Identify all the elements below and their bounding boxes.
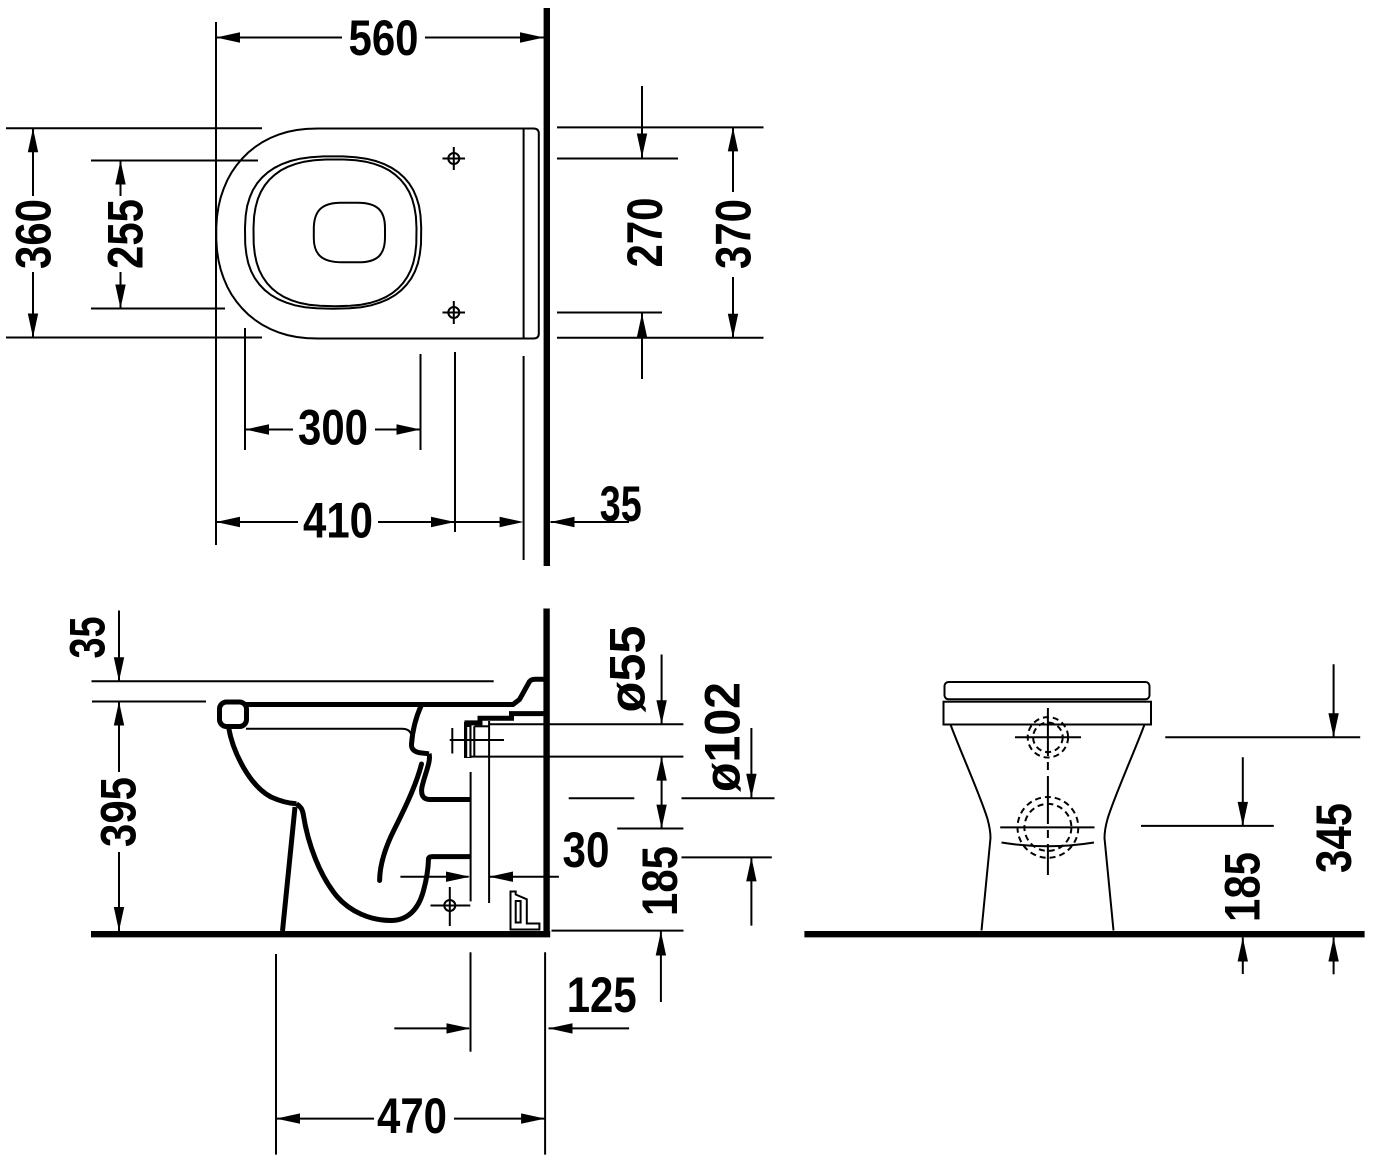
svg-text:370: 370 — [706, 199, 762, 269]
svg-text:ø102: ø102 — [695, 682, 751, 792]
svg-text:560: 560 — [349, 10, 419, 66]
svg-text:300: 300 — [298, 400, 368, 456]
svg-text:185: 185 — [1215, 852, 1271, 922]
svg-text:395: 395 — [91, 777, 147, 847]
svg-text:185: 185 — [632, 846, 688, 916]
svg-text:270: 270 — [617, 198, 673, 268]
svg-text:35: 35 — [59, 617, 115, 659]
svg-text:35: 35 — [600, 476, 642, 532]
svg-text:125: 125 — [567, 967, 637, 1023]
svg-text:410: 410 — [303, 493, 373, 549]
svg-text:470: 470 — [377, 1088, 447, 1144]
svg-text:ø55: ø55 — [600, 626, 656, 713]
svg-text:30: 30 — [563, 822, 610, 878]
svg-text:255: 255 — [98, 199, 154, 269]
svg-text:360: 360 — [6, 199, 62, 269]
svg-text:345: 345 — [1306, 803, 1362, 873]
